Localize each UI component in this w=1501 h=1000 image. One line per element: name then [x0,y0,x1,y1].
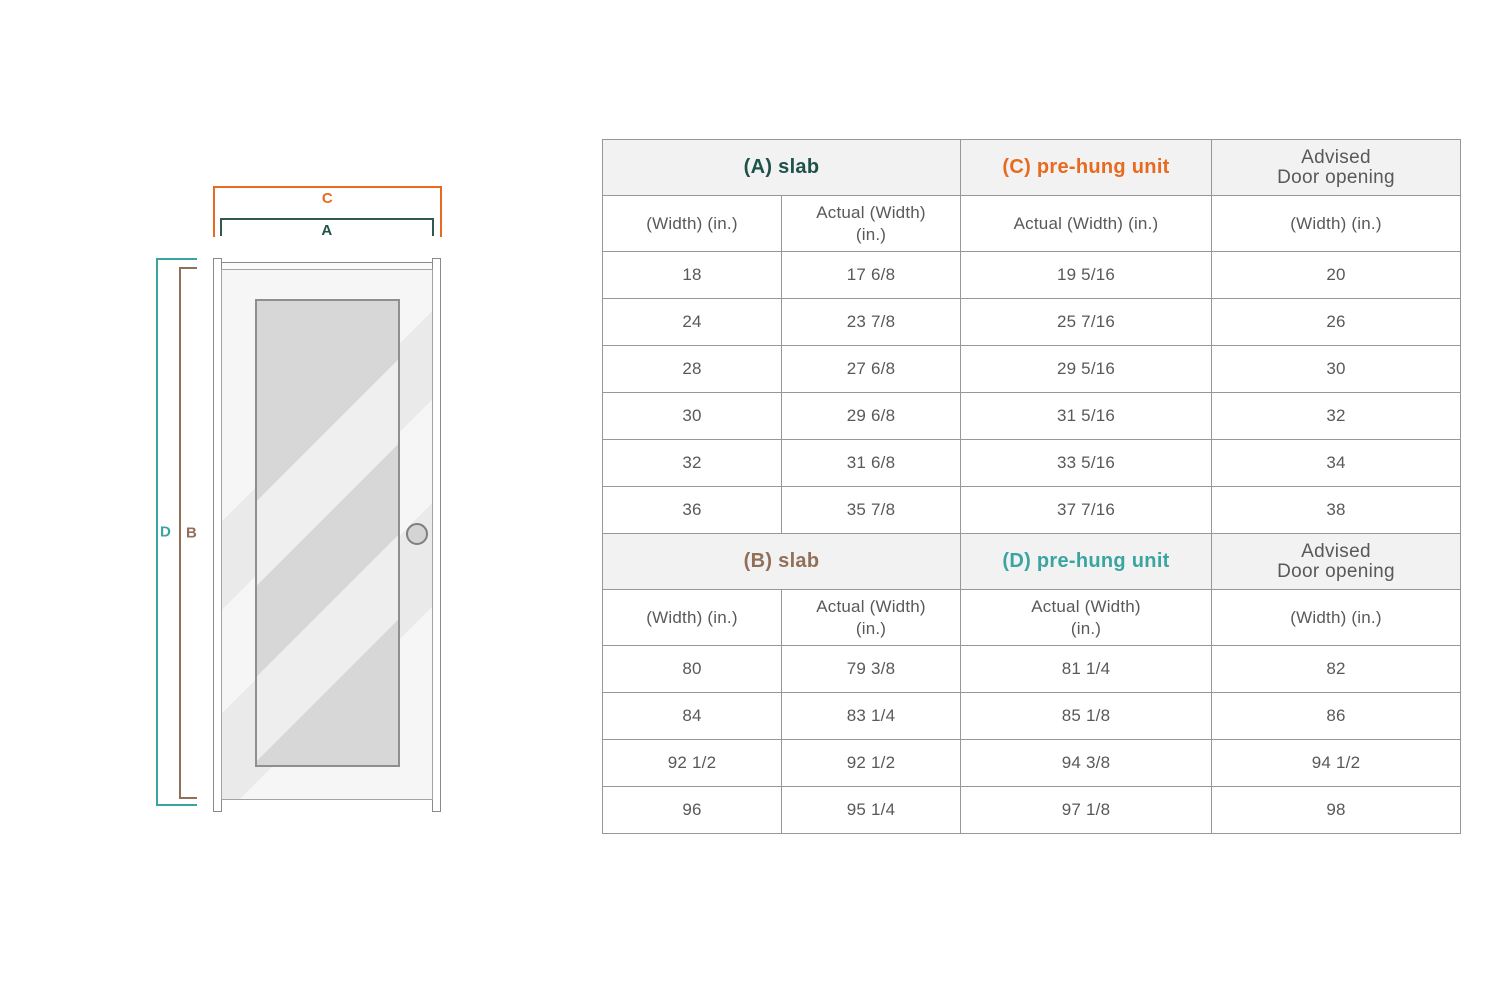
table-cell: 35 7/8 [782,487,961,534]
table-cell: 23 7/8 [782,299,961,346]
table-cell: 24 [603,299,782,346]
table-cell: 83 1/4 [782,693,961,740]
column-header-actual-width: Actual (Width) (in.) [961,196,1212,252]
dimension-label-b: B [186,525,197,542]
table-row: 80 79 3/8 81 1/4 82 [603,646,1461,693]
table-cell: 29 5/16 [961,346,1212,393]
table-cell: 86 [1212,693,1461,740]
table-cell: 82 [1212,646,1461,693]
group-header-advised-opening: Advised Door opening [1212,534,1461,590]
table-cell: 17 6/8 [782,252,961,299]
table-cell: 20 [1212,252,1461,299]
column-header-width: (Width) (in.) [1212,590,1461,646]
column-header-actual-width: Actual (Width) (in.) [782,196,961,252]
table-cell: 92 1/2 [782,740,961,787]
table-cell: 26 [1212,299,1461,346]
table-cell: 36 [603,487,782,534]
table-cell: 25 7/16 [961,299,1212,346]
table-row: 84 83 1/4 85 1/8 86 [603,693,1461,740]
table-cell: 38 [1212,487,1461,534]
dimension-label-c: C [322,188,333,207]
group-header-row-slab-a: (A) slab (C) pre-hung unit Advised Door … [603,140,1461,196]
table-cell: 98 [1212,787,1461,834]
door-size-table: (A) slab (C) pre-hung unit Advised Door … [602,139,1461,834]
table-cell: 29 6/8 [782,393,961,440]
table-row: 96 95 1/4 97 1/8 98 [603,787,1461,834]
table-cell: 81 1/4 [961,646,1212,693]
dimension-label-a: A [321,220,332,239]
table-row: 32 31 6/8 33 5/16 34 [603,440,1461,487]
table-cell: 94 1/2 [1212,740,1461,787]
table-cell: 30 [1212,346,1461,393]
table-row: 92 1/2 92 1/2 94 3/8 94 1/2 [603,740,1461,787]
table-cell: 27 6/8 [782,346,961,393]
table-cell: 79 3/8 [782,646,961,693]
group-header-advised-opening: Advised Door opening [1212,140,1461,196]
page: C A D B (A) slab (C) pre- [0,0,1501,1000]
table-cell: 31 5/16 [961,393,1212,440]
table-cell: 19 5/16 [961,252,1212,299]
table-cell: 85 1/8 [961,693,1212,740]
table-row: 18 17 6/8 19 5/16 20 [603,252,1461,299]
group-header-d-prehung: (D) pre-hung unit [961,534,1212,590]
table-cell: 95 1/4 [782,787,961,834]
table-cell: 32 [603,440,782,487]
table-cell: 94 3/8 [961,740,1212,787]
table-cell: 84 [603,693,782,740]
table-row: 24 23 7/8 25 7/16 26 [603,299,1461,346]
column-header-row: (Width) (in.) Actual (Width) (in.) Actua… [603,196,1461,252]
group-header-row-slab-b: (B) slab (D) pre-hung unit Advised Door … [603,534,1461,590]
table-cell: 30 [603,393,782,440]
group-header-a-slab: (A) slab [603,140,961,196]
table-cell: 31 6/8 [782,440,961,487]
table-cell: 33 5/16 [961,440,1212,487]
table-cell: 96 [603,787,782,834]
group-header-b-slab: (B) slab [603,534,961,590]
dimension-label-d: D [160,524,171,541]
column-header-actual-width: Actual (Width) (in.) [782,590,961,646]
table-cell: 97 1/8 [961,787,1212,834]
table-cell: 28 [603,346,782,393]
door-frame-right-jamb [432,258,441,812]
dimension-bracket-b: B [179,267,197,799]
column-header-width: (Width) (in.) [603,590,782,646]
table-cell: 92 1/2 [603,740,782,787]
table-cell: 80 [603,646,782,693]
table-cell: 34 [1212,440,1461,487]
dimension-bracket-a: A [220,218,434,236]
table-cell: 18 [603,252,782,299]
column-header-row: (Width) (in.) Actual (Width) (in.) Actua… [603,590,1461,646]
column-header-width: (Width) (in.) [1212,196,1461,252]
table-cell: 32 [1212,393,1461,440]
table-row: 28 27 6/8 29 5/16 30 [603,346,1461,393]
table-cell: 37 7/16 [961,487,1212,534]
column-header-width: (Width) (in.) [603,196,782,252]
door-glass-panel [255,299,400,767]
column-header-actual-width: Actual (Width) (in.) [961,590,1212,646]
table-row: 30 29 6/8 31 5/16 32 [603,393,1461,440]
table-row: 36 35 7/8 37 7/16 38 [603,487,1461,534]
group-header-c-prehung: (C) pre-hung unit [961,140,1212,196]
door-knob [406,523,428,545]
